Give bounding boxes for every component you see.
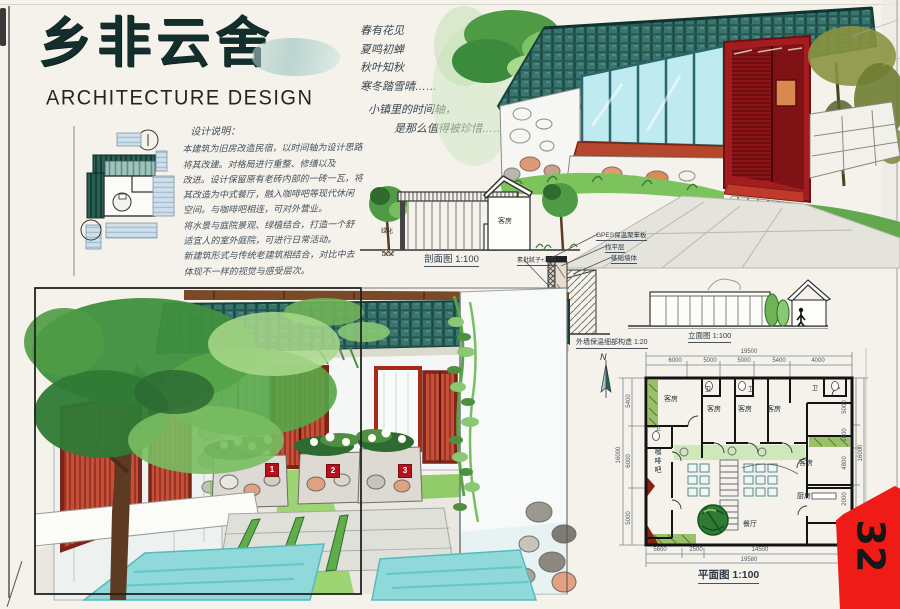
plan-north-label: N xyxy=(600,352,607,362)
sheet-top-edge xyxy=(0,4,900,5)
plan-dim-right: 2000 xyxy=(842,484,848,514)
north-arrow xyxy=(601,360,611,398)
site-sketch xyxy=(60,126,182,276)
plan-room-wc: 卫 xyxy=(705,384,711,393)
plan-room-cafe: 咖啡吧 xyxy=(652,448,662,475)
plan-dim-bottom: 14500 xyxy=(720,547,800,553)
sheet-left-edge xyxy=(8,6,10,598)
wall-detail-label: 基础墙体 xyxy=(611,252,637,264)
title-watercolor-smear xyxy=(252,38,340,76)
plan-room-guest: 客房 xyxy=(799,458,813,468)
design-notes-line: 本建筑为旧房改造民宿，以时间轴为设计思路 xyxy=(182,140,362,157)
plan-dim-top: 5000 xyxy=(692,358,728,364)
plan-room-dining: 餐厅 xyxy=(743,519,757,529)
plan-dim-left: 6000 xyxy=(626,446,632,476)
plan-room-guest: 客房 xyxy=(707,404,721,414)
plan-dim-top: 4000 xyxy=(796,358,840,364)
plan-room-guest: 客房 xyxy=(664,394,678,404)
plan-dim-right: 4800 xyxy=(842,448,848,478)
plan-dim-right: 1800 xyxy=(842,420,848,450)
plan-dim-top: 5000 xyxy=(726,358,762,364)
plan-caption: 平面图 1:100 xyxy=(698,567,759,584)
design-notes: 设计说明： 本建筑为旧房改造民宿，以时间轴为设计思路 将其改建。对格局进行重整、… xyxy=(182,123,364,280)
courtyard-perspective xyxy=(24,282,574,604)
elevation-caption: 立面图 1:100 xyxy=(688,330,731,343)
design-notes-line: 体现不一样的视觉与感受层次。 xyxy=(184,263,364,280)
plan-room-guest: 客房 xyxy=(738,404,752,414)
planter-plaque: 3 xyxy=(399,465,411,477)
plan-dim-bottom-overall: 19580 xyxy=(646,557,852,563)
section-side-label: 绿化 xyxy=(381,226,393,235)
section-room-label: 客房 xyxy=(498,216,512,226)
plan-dim-right-overall: 16000 xyxy=(858,436,864,470)
planter-plaque: 2 xyxy=(327,465,339,477)
plan-dim-top-overall: 19500 xyxy=(646,349,852,355)
presentation-board: 乡非云舍 ARCHITECTURE DESIGN 春有花见 夏鸣初蝉 秋叶知秋 … xyxy=(0,0,900,609)
design-notes-line: 新建筑形式与传统老建筑相结合，对比中去 xyxy=(183,247,363,264)
plan-dim-right: 5000 xyxy=(842,392,848,422)
plan-room-guest: 客房 xyxy=(767,404,781,414)
design-notes-heading: 设计说明： xyxy=(190,123,362,140)
plan-room-wc: 卫 xyxy=(655,423,661,432)
sheet-corner-mark xyxy=(0,8,6,46)
plan-dim-left-overall: 16000 xyxy=(616,438,622,472)
plan-dim-left: 5400 xyxy=(626,386,632,416)
plan-dim-top: 5400 xyxy=(761,358,797,364)
plan-dim-bottom: 2500 xyxy=(678,547,714,553)
wall-detail-label: 素批腻子+涂料 xyxy=(517,255,557,266)
plan-room-wc: 卫 xyxy=(812,383,818,392)
section-caption: 剖面图 1:100 xyxy=(424,251,479,267)
wall-detail-label: GPES保温聚苯板 xyxy=(596,229,647,241)
plan-room-kitchen: 厨房 xyxy=(797,491,811,501)
design-notes-line: 其改造为中式餐厅，融入咖啡吧等现代休闲 xyxy=(183,186,363,203)
plan-dim-left: 5000 xyxy=(626,503,632,533)
planter-plaque: 1 xyxy=(266,464,278,476)
title-block: 乡非云舍 xyxy=(38,16,274,70)
board-subtitle: ARCHITECTURE DESIGN xyxy=(46,86,313,111)
page-number: 32 xyxy=(848,520,892,573)
elevation-drawing xyxy=(622,274,834,336)
design-notes-line: 将其改建。对格局进行重整、修缮以及 xyxy=(183,156,363,173)
plan-dim-top: 6000 xyxy=(655,358,695,364)
plan-dim-bottom: 5600 xyxy=(640,547,680,553)
plan-room-wc: 卫 xyxy=(748,384,754,393)
board-title: 乡非云舍 xyxy=(38,16,274,70)
